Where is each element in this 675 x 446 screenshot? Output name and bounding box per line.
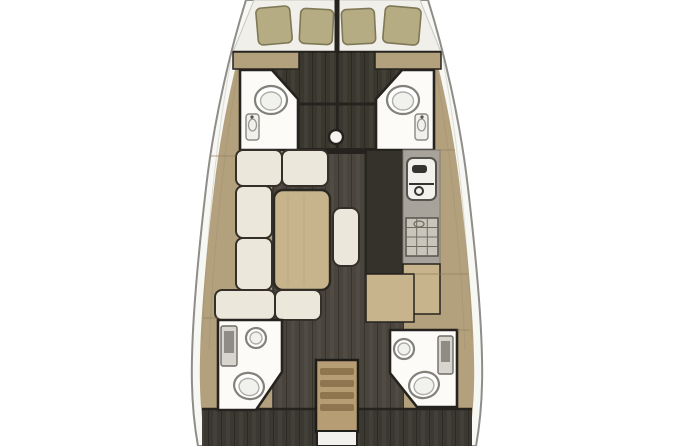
salon-center-bench: [333, 208, 359, 266]
toilet-bowl: [261, 92, 282, 110]
sofa-cushion: [282, 150, 328, 186]
stair-tread: [320, 392, 354, 399]
port-forward-cabinet: [233, 52, 299, 69]
stair-tread: [320, 404, 354, 411]
sofa-cushion: [215, 290, 275, 320]
shower-panel-glass: [224, 331, 234, 353]
round-sink-basin: [398, 343, 410, 355]
sofa-cushion: [236, 238, 272, 290]
berth-pillow-4: [382, 5, 421, 45]
galley-cabinets: [366, 150, 403, 274]
sofa-cushion: [236, 186, 272, 238]
round-sink-basin: [250, 332, 262, 344]
mast: [329, 130, 343, 144]
faucet: [250, 115, 253, 118]
faucet: [420, 115, 423, 118]
engine-hatch: [317, 431, 357, 446]
stair-tread: [320, 368, 354, 375]
galley: [366, 150, 440, 322]
salon-table: [274, 190, 330, 290]
galley-sink-basin: [412, 165, 427, 173]
sofa-cushion: [236, 150, 282, 186]
berth-pillow-2: [299, 8, 334, 45]
stair-tread: [320, 380, 354, 387]
starboard-forward-cabinet: [375, 52, 441, 69]
floorplan-drawing: [0, 0, 675, 446]
companionway: [316, 360, 358, 446]
berth-pillow-3: [341, 8, 376, 45]
shower-panel-glass: [441, 341, 450, 362]
yacht-floorplan: [0, 0, 675, 446]
v-berth-divider: [335, 0, 340, 52]
galley-counter-corner: [366, 274, 414, 322]
berth-pillow-1: [255, 6, 292, 46]
toilet-bowl: [393, 92, 414, 110]
sofa-cushion: [275, 290, 321, 320]
